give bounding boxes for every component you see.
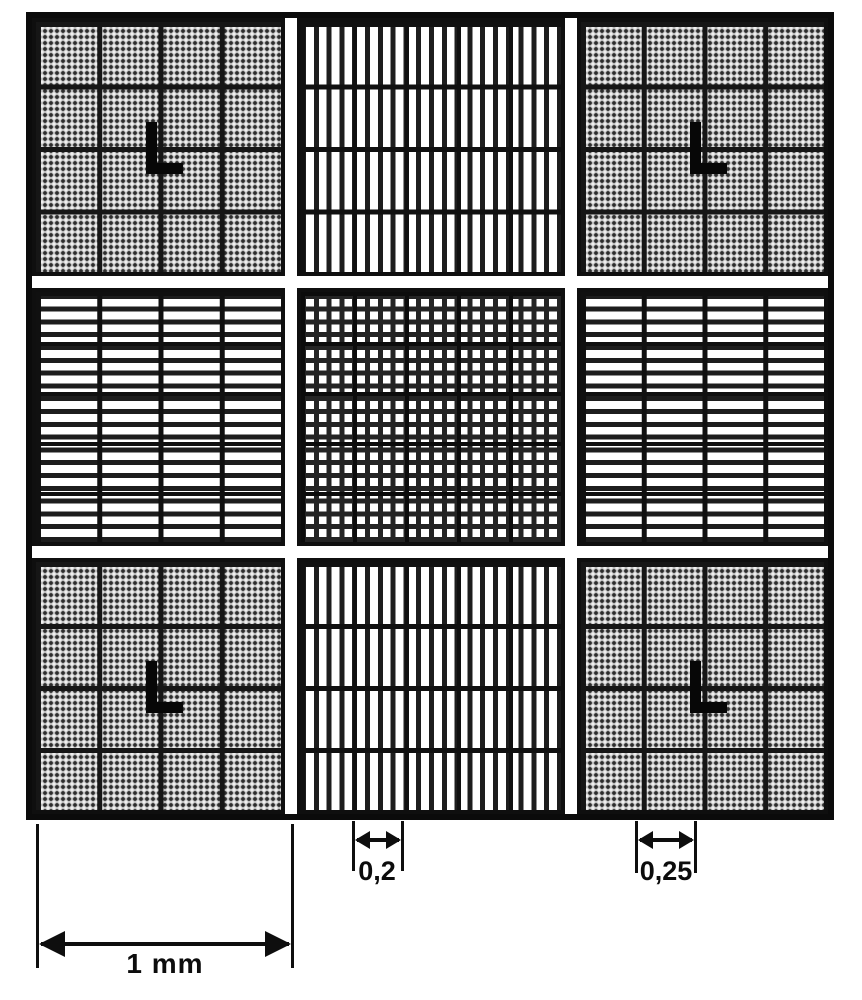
arrowhead-right-icon (679, 831, 694, 849)
edge-square-middle-left (32, 288, 285, 546)
corner-square-bottom-right (577, 558, 828, 814)
corner-square-bottom-left (32, 558, 285, 814)
arrowhead-left-icon (355, 831, 370, 849)
arrowhead-left-icon (39, 931, 65, 957)
edge-square-top-middle (297, 18, 565, 276)
dimension-arrow-02 (355, 830, 401, 850)
arrowhead-left-icon (638, 831, 653, 849)
dimension-arrow-025 (638, 830, 694, 850)
dimension-label-025: 0,25 (618, 856, 714, 887)
dimension-label-1mm: 1 mm (63, 948, 267, 980)
l-corner-mark-icon (690, 661, 727, 713)
edge-square-bottom-middle (297, 558, 565, 814)
center-fine-grid-square (297, 288, 565, 546)
extension-line-1mm-right (291, 824, 294, 968)
counting-grid (26, 12, 834, 820)
dimension-label-02: 0,2 (339, 856, 415, 887)
arrowhead-right-icon (265, 931, 291, 957)
corner-square-top-left (32, 18, 285, 276)
arrowhead-right-icon (386, 831, 401, 849)
hemocytometer-figure: 1 mm 0,2 0,25 (0, 0, 862, 1000)
l-corner-mark-icon (146, 661, 183, 713)
l-corner-mark-icon (690, 122, 727, 174)
edge-square-middle-right (577, 288, 828, 546)
arrow-shaft (41, 942, 289, 946)
l-corner-mark-icon (146, 122, 183, 174)
corner-square-top-right (577, 18, 828, 276)
